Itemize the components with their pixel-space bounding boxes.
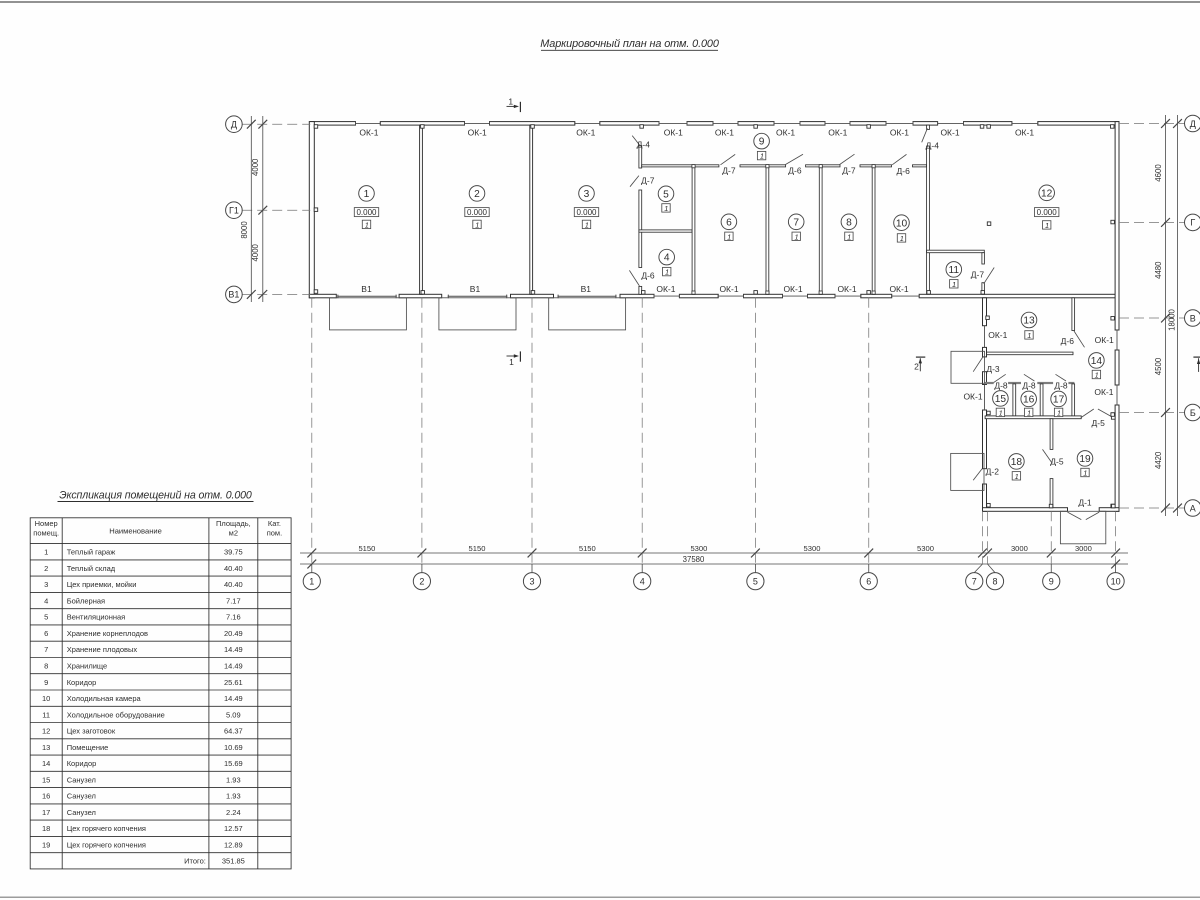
svg-text:Помещение: Помещение — [67, 743, 109, 752]
svg-text:1: 1 — [900, 234, 904, 243]
svg-text:1: 1 — [364, 189, 370, 200]
svg-text:13: 13 — [1023, 316, 1035, 327]
svg-text:5.09: 5.09 — [226, 710, 241, 719]
svg-text:ОК-1: ОК-1 — [776, 128, 795, 138]
svg-text:5150: 5150 — [469, 544, 486, 553]
svg-text:1: 1 — [365, 220, 369, 229]
svg-text:12.57: 12.57 — [224, 824, 243, 833]
svg-text:3000: 3000 — [1011, 544, 1028, 553]
svg-text:39.75: 39.75 — [224, 548, 243, 557]
svg-text:В1: В1 — [228, 290, 239, 300]
svg-text:1: 1 — [664, 204, 668, 213]
svg-text:Г1: Г1 — [229, 206, 239, 216]
svg-text:Теплый гараж: Теплый гараж — [67, 548, 116, 557]
svg-text:ОК-1: ОК-1 — [359, 128, 378, 138]
svg-text:19: 19 — [1079, 454, 1091, 465]
svg-text:Теплый склад: Теплый склад — [67, 564, 116, 573]
svg-text:17: 17 — [42, 808, 50, 817]
svg-text:64.37: 64.37 — [224, 727, 243, 736]
svg-text:Д: Д — [1190, 119, 1196, 129]
svg-text:4: 4 — [664, 253, 670, 264]
svg-text:Хранение корнеплодов: Хранение корнеплодов — [67, 629, 148, 638]
svg-text:Санузел: Санузел — [67, 808, 96, 817]
svg-text:Д-7: Д-7 — [641, 176, 655, 186]
svg-text:ОК-1: ОК-1 — [715, 128, 734, 138]
svg-text:Цех заготовок: Цех заготовок — [67, 727, 116, 736]
svg-text:5: 5 — [44, 613, 48, 622]
svg-text:7: 7 — [44, 645, 48, 654]
svg-text:Д-7: Д-7 — [971, 269, 985, 279]
svg-text:Д-4: Д-4 — [637, 140, 651, 150]
svg-text:15.69: 15.69 — [224, 759, 243, 768]
svg-text:3000: 3000 — [1075, 544, 1092, 553]
svg-text:10: 10 — [1111, 577, 1121, 587]
svg-text:7.17: 7.17 — [226, 596, 241, 605]
svg-text:Вентиляционная: Вентиляционная — [67, 613, 126, 622]
svg-text:Д-8: Д-8 — [1054, 380, 1068, 390]
svg-text:1: 1 — [794, 232, 798, 241]
svg-text:Д-3: Д-3 — [986, 364, 1000, 374]
svg-text:6: 6 — [44, 629, 48, 638]
svg-text:8: 8 — [846, 217, 852, 228]
svg-text:1: 1 — [760, 152, 764, 161]
svg-text:ОК-1: ОК-1 — [719, 284, 738, 294]
svg-text:1: 1 — [475, 220, 479, 229]
svg-text:ОК-1: ОК-1 — [988, 330, 1007, 340]
svg-text:Площадь,: Площадь, — [216, 519, 251, 528]
svg-text:40.40: 40.40 — [224, 564, 243, 573]
svg-text:5: 5 — [753, 577, 758, 587]
svg-text:Кат.: Кат. — [268, 519, 281, 528]
svg-text:Номер: Номер — [35, 519, 58, 528]
svg-text:5150: 5150 — [579, 544, 596, 553]
svg-text:1: 1 — [999, 408, 1003, 417]
svg-text:2: 2 — [44, 564, 48, 573]
svg-text:15: 15 — [42, 775, 50, 784]
svg-text:5300: 5300 — [917, 544, 934, 553]
svg-text:1: 1 — [585, 220, 589, 229]
svg-text:ОК-1: ОК-1 — [828, 128, 847, 138]
svg-text:1: 1 — [665, 268, 669, 277]
svg-text:В1: В1 — [470, 284, 481, 294]
svg-text:0.000: 0.000 — [1037, 208, 1058, 217]
svg-text:Д-1: Д-1 — [1078, 498, 1092, 508]
svg-text:5300: 5300 — [690, 544, 707, 553]
svg-text:18000: 18000 — [1168, 308, 1177, 330]
svg-text:ОК-1: ОК-1 — [963, 391, 982, 401]
svg-text:Д-7: Д-7 — [722, 166, 736, 176]
svg-text:Б: Б — [1190, 408, 1196, 418]
svg-text:7.16: 7.16 — [226, 613, 241, 622]
svg-text:13: 13 — [42, 743, 50, 752]
svg-text:Коридор: Коридор — [67, 678, 97, 687]
svg-text:15: 15 — [995, 394, 1007, 405]
svg-text:1: 1 — [727, 232, 731, 241]
svg-text:Санузел: Санузел — [67, 775, 96, 784]
svg-text:8: 8 — [992, 577, 997, 587]
svg-text:Итого:: Итого: — [184, 857, 206, 866]
svg-text:11: 11 — [42, 710, 50, 719]
svg-text:ОК-1: ОК-1 — [656, 284, 675, 294]
svg-text:14: 14 — [42, 759, 50, 768]
svg-text:ОК-1: ОК-1 — [1095, 335, 1114, 345]
svg-text:В: В — [1190, 313, 1196, 323]
svg-text:3: 3 — [584, 189, 590, 200]
svg-text:3: 3 — [44, 580, 48, 589]
svg-text:1: 1 — [1027, 331, 1031, 340]
svg-text:14.49: 14.49 — [224, 694, 243, 703]
svg-text:3: 3 — [529, 577, 534, 587]
svg-text:16: 16 — [1023, 395, 1035, 406]
svg-text:1: 1 — [1095, 371, 1099, 380]
svg-text:Д-6: Д-6 — [641, 271, 655, 281]
svg-text:1: 1 — [1045, 221, 1049, 230]
svg-text:1: 1 — [309, 577, 314, 587]
svg-text:16: 16 — [42, 792, 50, 801]
svg-text:Д-6: Д-6 — [897, 166, 911, 176]
svg-text:А: А — [1190, 503, 1196, 513]
svg-text:ОК-1: ОК-1 — [783, 284, 802, 294]
svg-text:ОК-1: ОК-1 — [468, 128, 487, 138]
svg-text:В1: В1 — [581, 284, 592, 294]
svg-text:Д-5: Д-5 — [1092, 418, 1106, 428]
svg-text:Д: Д — [231, 120, 237, 130]
svg-text:В1: В1 — [361, 284, 372, 294]
svg-text:25.61: 25.61 — [224, 678, 243, 687]
svg-text:1.93: 1.93 — [226, 775, 241, 784]
svg-text:2: 2 — [474, 189, 480, 200]
svg-text:14.49: 14.49 — [224, 661, 243, 670]
svg-text:8000: 8000 — [240, 221, 249, 239]
svg-text:Бойлерная: Бойлерная — [67, 596, 105, 605]
svg-text:Д-8: Д-8 — [994, 380, 1008, 390]
svg-text:1.93: 1.93 — [226, 792, 241, 801]
svg-text:Холодильная камера: Холодильная камера — [67, 694, 142, 703]
svg-text:пом.: пом. — [267, 528, 282, 537]
svg-text:18: 18 — [42, 824, 50, 833]
svg-text:ОК-1: ОК-1 — [664, 128, 683, 138]
svg-text:4420: 4420 — [1154, 451, 1163, 469]
svg-text:0.000: 0.000 — [356, 208, 377, 217]
svg-text:Экспликация помещений на отм.: Экспликация помещений на отм. 0.000 — [59, 489, 252, 501]
svg-text:ОК-1: ОК-1 — [940, 128, 959, 138]
svg-text:Наименование: Наименование — [109, 526, 162, 535]
svg-text:20.49: 20.49 — [224, 629, 243, 638]
svg-text:Холодильное оборудование: Холодильное оборудование — [67, 710, 165, 719]
svg-text:5: 5 — [663, 189, 669, 200]
svg-text:ОК-1: ОК-1 — [1015, 128, 1034, 138]
svg-text:Цех горячего копчения: Цех горячего копчения — [67, 840, 146, 849]
svg-text:Маркировочный план на отм. 0.0: Маркировочный план на отм. 0.000 — [540, 38, 719, 50]
svg-text:Санузел: Санузел — [67, 792, 96, 801]
svg-text:Хранение плодовых: Хранение плодовых — [67, 645, 138, 654]
svg-text:5300: 5300 — [804, 544, 821, 553]
svg-text:9: 9 — [1049, 577, 1054, 587]
svg-text:11: 11 — [949, 265, 960, 276]
svg-text:2: 2 — [914, 361, 919, 371]
svg-text:5150: 5150 — [358, 544, 375, 553]
svg-text:1: 1 — [1083, 469, 1087, 478]
svg-text:1: 1 — [1015, 472, 1019, 481]
svg-text:6: 6 — [726, 217, 732, 228]
svg-text:1: 1 — [44, 548, 48, 557]
svg-text:Д-7: Д-7 — [842, 166, 856, 176]
svg-text:12: 12 — [1041, 188, 1053, 199]
svg-text:10: 10 — [896, 218, 908, 229]
svg-text:4480: 4480 — [1154, 261, 1163, 279]
svg-text:Цех горячего копчения: Цех горячего копчения — [67, 824, 146, 833]
svg-text:18: 18 — [1011, 457, 1023, 468]
svg-text:1: 1 — [847, 232, 851, 241]
svg-text:0.000: 0.000 — [467, 208, 488, 217]
svg-text:ОК-1: ОК-1 — [890, 128, 909, 138]
svg-text:Г: Г — [1190, 218, 1195, 228]
svg-text:7: 7 — [793, 217, 799, 228]
svg-text:м2: м2 — [229, 528, 238, 537]
svg-text:ОК-1: ОК-1 — [576, 128, 595, 138]
svg-text:14: 14 — [1091, 356, 1103, 367]
svg-text:1: 1 — [508, 96, 513, 106]
svg-text:19: 19 — [42, 840, 50, 849]
svg-text:Д-6: Д-6 — [788, 166, 802, 176]
svg-text:Д-2: Д-2 — [986, 467, 1000, 477]
svg-text:4: 4 — [640, 577, 645, 587]
svg-text:10: 10 — [42, 694, 50, 703]
svg-text:6: 6 — [866, 577, 871, 587]
svg-text:ОК-1: ОК-1 — [837, 284, 856, 294]
svg-text:2.24: 2.24 — [226, 808, 241, 817]
svg-text:7: 7 — [972, 577, 977, 587]
svg-text:10.69: 10.69 — [224, 743, 243, 752]
svg-text:4000: 4000 — [251, 243, 260, 261]
svg-text:Д-4: Д-4 — [926, 140, 940, 150]
svg-text:ОК-1: ОК-1 — [889, 284, 908, 294]
svg-text:2: 2 — [419, 577, 424, 587]
svg-text:12.89: 12.89 — [224, 840, 243, 849]
svg-text:8: 8 — [44, 661, 48, 670]
svg-text:9: 9 — [44, 678, 48, 687]
svg-text:1: 1 — [952, 280, 956, 289]
svg-text:4600: 4600 — [1154, 164, 1163, 182]
svg-text:4: 4 — [44, 596, 48, 605]
svg-text:4500: 4500 — [1154, 357, 1163, 375]
svg-text:Цех приемки, мойки: Цех приемки, мойки — [67, 580, 137, 589]
svg-text:Хранилище: Хранилище — [67, 661, 108, 670]
svg-text:Коридор: Коридор — [67, 759, 97, 768]
svg-text:37580: 37580 — [683, 555, 705, 564]
svg-text:1: 1 — [1027, 408, 1031, 417]
svg-text:40.40: 40.40 — [224, 580, 243, 589]
svg-text:0.000: 0.000 — [576, 208, 597, 217]
svg-text:Д-8: Д-8 — [1022, 380, 1036, 390]
svg-text:4000: 4000 — [251, 158, 260, 176]
svg-text:Д-6: Д-6 — [1061, 336, 1075, 346]
svg-text:17: 17 — [1053, 395, 1065, 406]
svg-text:12: 12 — [42, 727, 50, 736]
svg-text:Д-5: Д-5 — [1050, 457, 1064, 467]
svg-text:351.85: 351.85 — [222, 857, 245, 866]
svg-text:9: 9 — [759, 137, 765, 148]
svg-text:1: 1 — [509, 357, 514, 367]
svg-text:14.49: 14.49 — [224, 645, 243, 654]
svg-text:помещ.: помещ. — [33, 528, 59, 537]
svg-text:1: 1 — [1057, 408, 1061, 417]
svg-text:ОК-1: ОК-1 — [1094, 387, 1113, 397]
